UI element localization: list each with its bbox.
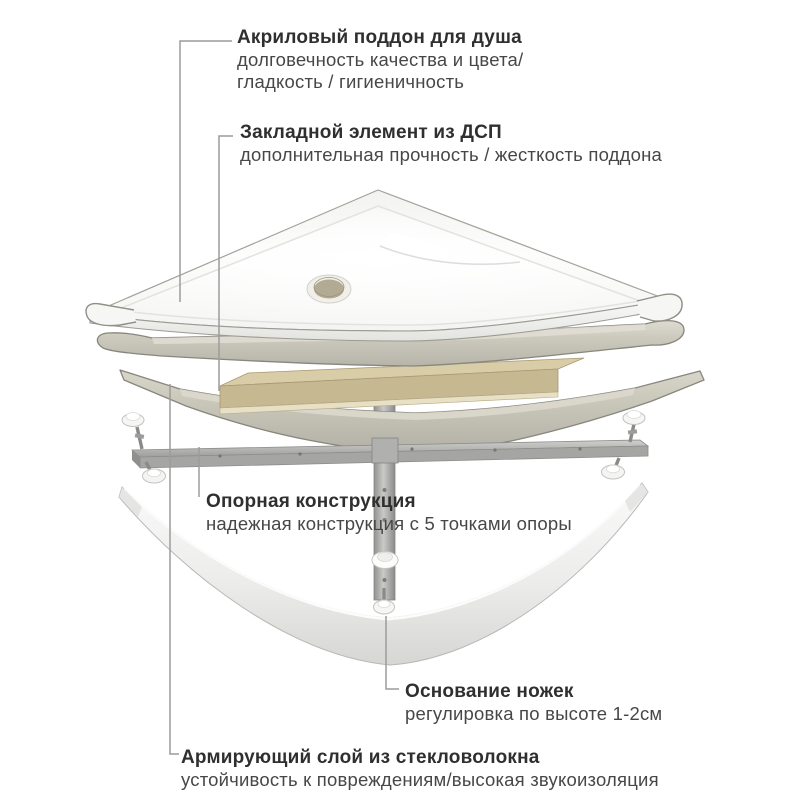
adjustable-foot-lower-right <box>602 458 625 479</box>
annotation-title: Закладной элемент из ДСП <box>240 122 662 144</box>
infographic-page: Акриловый поддон для душа долговечность … <box>0 0 800 800</box>
annotation-acrylic-tray: Акриловый поддон для душа долговечность … <box>237 27 523 92</box>
annotation-line: долговечность качества и цвета/ <box>237 49 523 71</box>
annotation-support-frame: Опорная конструкция надежная конструкция… <box>206 491 572 535</box>
annotation-line: устойчивость к повреждениям/высокая звук… <box>181 769 659 791</box>
annotation-title: Опорная конструкция <box>206 491 572 513</box>
annotation-fiberglass: Армирующий слой из стекловолокна устойчи… <box>181 747 659 791</box>
adjustable-foot-upper-right <box>623 411 645 443</box>
annotation-chipboard: Закладной элемент из ДСП дополнительная … <box>240 122 662 166</box>
acrylic-tray <box>86 190 682 341</box>
annotation-title: Армирующий слой из стекловолокна <box>181 747 659 769</box>
annotation-line: надежная конструкция с 5 точками опоры <box>206 513 572 535</box>
annotation-line: гладкость / гигиеничность <box>237 71 523 93</box>
annotation-title: Основание ножек <box>405 681 662 703</box>
exploded-view-diagram <box>0 0 800 800</box>
adjustable-foot-upper-left <box>122 413 144 450</box>
annotation-title: Акриловый поддон для душа <box>237 27 523 49</box>
annotation-line: дополнительная прочность / жесткость под… <box>240 144 662 166</box>
annotation-feet-base: Основание ножек регулировка по высоте 1-… <box>405 681 662 725</box>
annotation-line: регулировка по высоте 1-2см <box>405 703 662 725</box>
connector-fiberglass <box>170 384 179 754</box>
